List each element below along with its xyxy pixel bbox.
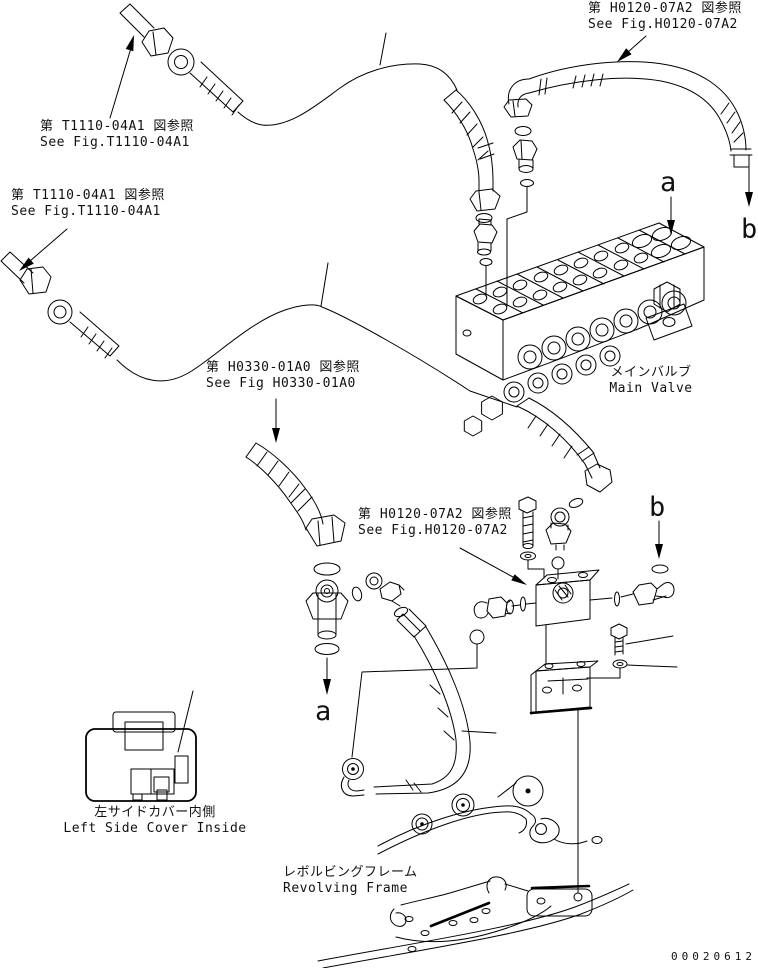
hose-to-valve-left	[444, 90, 500, 296]
port-arrow-a-bottom	[323, 658, 331, 695]
caption-revolving-frame: レボルビングフレーム Revolving Frame	[283, 865, 418, 897]
plug	[470, 630, 484, 644]
leader-line	[587, 668, 620, 678]
port-marker-b-top: b	[741, 216, 757, 243]
hose-elbow-middle	[246, 443, 348, 655]
valve-hex-plug	[482, 396, 503, 420]
hose-to-frame	[341, 609, 496, 796]
leader-arrow-h0120-mid	[460, 548, 527, 585]
washer	[521, 552, 536, 560]
valve-mounting-lug	[646, 304, 692, 340]
port-seal	[615, 592, 620, 606]
caption-en: Left Side Cover Inside	[35, 821, 275, 837]
elbow-fitting-middle	[351, 573, 409, 619]
parts-diagram-page: 第 T1110-04A1 図参照 See Fig.T1110-04A1 第 T1…	[0, 0, 758, 968]
hose-break-tick	[321, 263, 328, 306]
leader-line	[352, 644, 477, 757]
valve-left-face	[456, 296, 503, 380]
o-ring	[351, 586, 363, 602]
leader-line	[626, 636, 673, 644]
plug	[552, 557, 564, 569]
left-side-cover-drawing	[86, 691, 196, 801]
leader-line	[528, 560, 544, 578]
port-marker-a-bottom: a	[315, 698, 331, 725]
caption-left-side-cover: 左サイドカバー内側 Left Side Cover Inside	[35, 805, 275, 837]
o-ring	[521, 180, 534, 187]
elbow-fitting-right-port	[633, 565, 674, 605]
ref-label-jp: 第 T1110-04A1 図参照	[11, 188, 165, 204]
caption-en: Revolving Frame	[283, 881, 418, 897]
hose-assembly-top-left	[120, 4, 243, 115]
o-ring	[480, 259, 492, 266]
port-marker-b-mid: b	[649, 494, 665, 521]
o-ring	[568, 497, 584, 509]
o-ring	[476, 214, 492, 223]
o-ring	[652, 565, 668, 573]
hose-to-manifold	[517, 398, 612, 550]
hose-break-tick	[380, 33, 386, 65]
o-ring	[314, 563, 340, 575]
caption-en: Main Valve	[596, 381, 706, 397]
drawing-number: 00020612	[671, 950, 756, 963]
washer	[613, 660, 627, 668]
port-marker-a-top: a	[660, 169, 676, 196]
cover-body	[86, 729, 196, 801]
bolt-and-washer-manifold	[519, 497, 564, 579]
leader-line	[178, 691, 193, 752]
ref-label-en: See Fig.H0120-07A2	[358, 523, 512, 539]
bracket-block	[531, 625, 598, 893]
port-arrow-b-top	[745, 168, 753, 207]
ref-label-jp: 第 T1110-04A1 図参照	[40, 119, 194, 135]
bolt-and-washer-bracket	[587, 624, 677, 678]
port-arrow-b-mid	[655, 521, 663, 559]
caption-jp: レボルビングフレーム	[283, 865, 418, 881]
manifold-block	[512, 570, 633, 626]
o-ring	[515, 127, 531, 136]
ref-label-jp: 第 H0120-07A2 図参照	[588, 1, 742, 17]
caption-jp: 左サイドカバー内側	[35, 805, 275, 821]
leader-arrow-t1110-top	[110, 35, 134, 118]
leader-arrow-h0330	[272, 399, 280, 443]
ref-label-en: See Fig.H0120-07A2	[588, 17, 742, 33]
leader-arrow-h0120-top	[617, 36, 646, 62]
caption-main-valve: メインバルブ Main Valve	[596, 365, 706, 397]
ref-label-t1110-top: 第 T1110-04A1 図参照 See Fig.T1110-04A1	[40, 119, 194, 151]
ref-label-t1110-left: 第 T1110-04A1 図参照 See Fig.T1110-04A1	[11, 188, 165, 220]
port-seal	[521, 597, 526, 611]
valve-top-ports	[472, 225, 693, 316]
ref-label-jp: 第 H0330-01A0 図参照	[206, 360, 360, 376]
ref-label-en: See Fig.T1110-04A1	[11, 204, 165, 220]
main-valve-block	[456, 223, 704, 436]
leader-line	[462, 731, 496, 733]
hose-curve-top	[238, 33, 457, 125]
ref-label-en: See Fig H0330-01A0	[206, 376, 360, 392]
valve-hex-plug	[464, 416, 481, 436]
weld-seam	[431, 903, 489, 926]
ref-label-h0330-mid: 第 H0330-01A0 図参照 See Fig H0330-01A0	[206, 360, 360, 392]
ref-label-h0120-top: 第 H0120-07A2 図参照 See Fig.H0120-07A2	[588, 1, 742, 33]
ref-label-jp: 第 H0120-07A2 図参照	[358, 507, 512, 523]
caption-jp: メインバルブ	[596, 365, 706, 381]
leader-arrow-t1110-left	[19, 229, 67, 271]
leader-line	[627, 665, 677, 667]
ref-label-h0120-mid: 第 H0120-07A2 図参照 See Fig.H0120-07A2	[358, 507, 512, 539]
ref-label-en: See Fig.T1110-04A1	[40, 135, 194, 151]
valve-front-face	[503, 247, 704, 380]
hose-assembly-left	[1, 252, 119, 358]
o-ring	[315, 644, 339, 655]
